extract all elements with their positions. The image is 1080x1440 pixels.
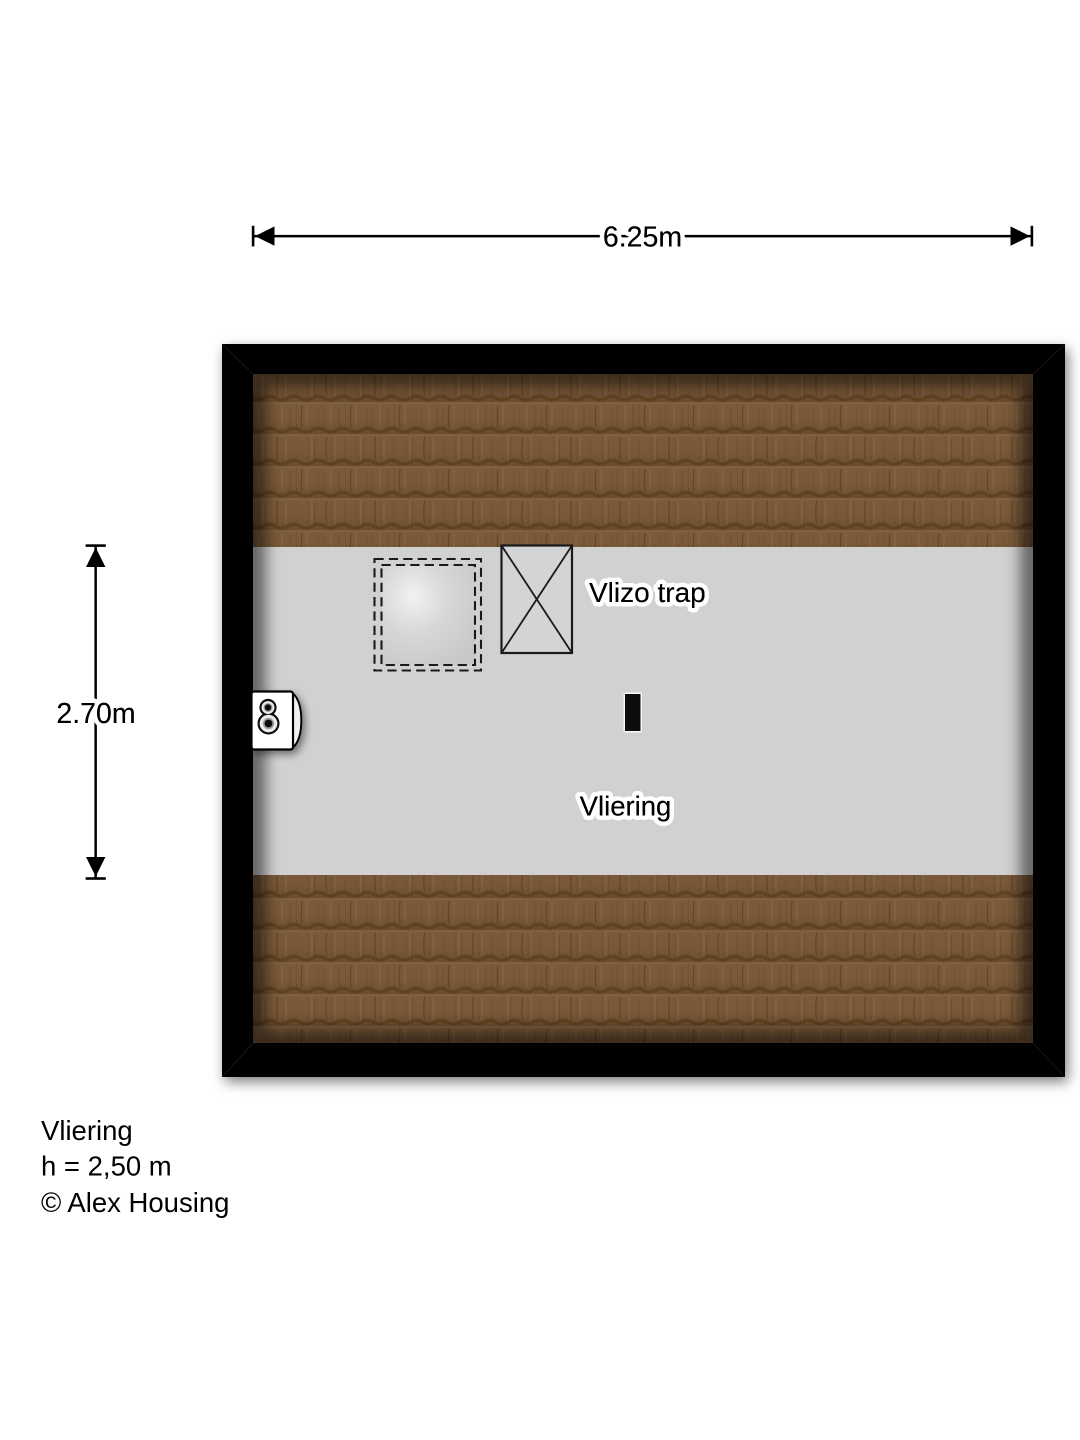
svg-text:Vliering: Vliering xyxy=(41,1115,133,1146)
svg-text:6.25m: 6.25m xyxy=(603,222,682,254)
svg-text:© Alex Housing: © Alex Housing xyxy=(41,1187,229,1218)
svg-text:h = 2,50 m: h = 2,50 m xyxy=(41,1151,172,1182)
svg-text:2.70m: 2.70m xyxy=(56,698,135,730)
svg-text:Vlizo trap: Vlizo trap xyxy=(589,577,706,608)
svg-text:Vliering: Vliering xyxy=(580,791,672,822)
